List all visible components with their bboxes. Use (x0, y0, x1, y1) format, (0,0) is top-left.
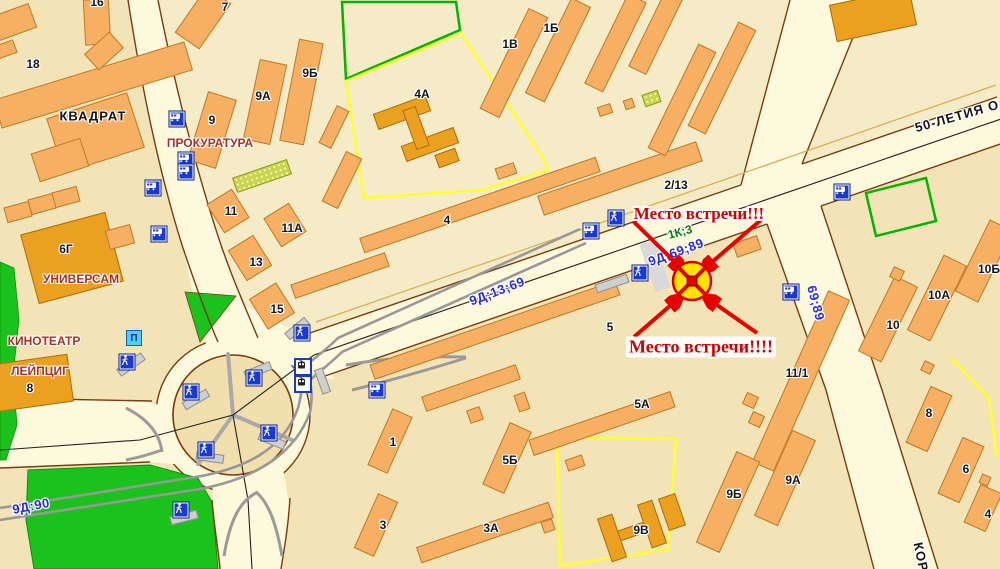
pedestrian-crossing-icon (261, 425, 278, 442)
pedestrian-crossing-icon (173, 502, 190, 519)
bus-stop-icon (169, 111, 186, 128)
bus-stop-icon (834, 184, 851, 201)
pedestrian-crossing-icon (246, 370, 263, 387)
bus-stop-icon (178, 164, 195, 181)
pedestrian-crossing-icon (119, 354, 136, 371)
pedestrian-crossing-icon (294, 325, 311, 342)
bus-stop-icon (783, 284, 800, 301)
meeting-label-top: Место встречи!!! (634, 204, 764, 224)
parking-icon: П (126, 330, 142, 346)
pedestrian-crossing-icon (608, 210, 625, 227)
pedestrian-crossing-icon (183, 384, 200, 401)
bus-stop-icon (145, 180, 162, 197)
bus-stop-icon (583, 223, 600, 240)
icons-layer: П (0, 0, 1000, 569)
bus-stop-icon (369, 382, 386, 399)
map-canvas[interactable]: 181679Б9А91111А13156Г84А1В1Б42/1355А5Б3А… (0, 0, 1000, 569)
tram-stop-icon (294, 358, 312, 376)
tram-stop-icon (294, 375, 312, 393)
meeting-label-bottom: Место встречи!!!! (626, 337, 776, 358)
pedestrian-crossing-icon (632, 265, 649, 282)
bus-stop-icon (151, 226, 168, 243)
pedestrian-crossing-icon (198, 442, 215, 459)
